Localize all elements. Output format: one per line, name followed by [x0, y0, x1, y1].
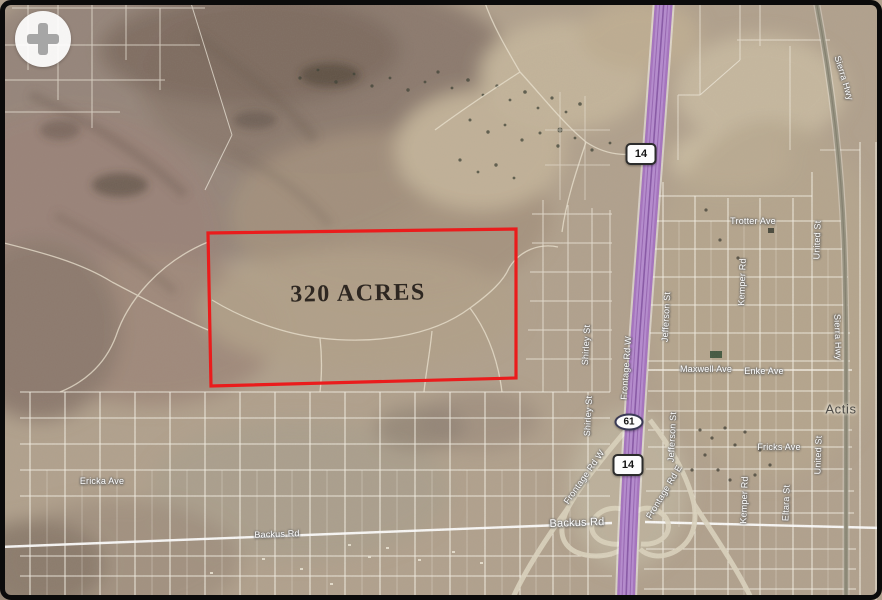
satellite-map-canvas[interactable]: 320 ACRES 14 14 61 Backus Rd Backus Rd S…: [0, 0, 882, 600]
ericka-ave-label: Ericka Ave: [80, 476, 124, 486]
kemper-rd-label-south: Kemper Rd: [738, 476, 750, 524]
sierra-hwy-label-mid: Sierra Hwy: [832, 314, 844, 360]
eltara-st-label: Eltara St: [780, 485, 791, 522]
image-grain: [0, 0, 882, 600]
backus-rd-label-center: Backus Rd: [549, 516, 604, 530]
maxwell-ave-label: Maxwell Ave: [680, 364, 732, 374]
trotter-ave-label: Trotter Ave: [730, 216, 776, 226]
shirley-st-label-north: Shirley St: [580, 325, 592, 366]
map-window: 320 ACRES 14 14 61 Backus Rd Backus Rd S…: [0, 0, 882, 600]
zoom-in-button[interactable]: [15, 11, 71, 67]
exit-61-badge: 61: [615, 414, 644, 431]
shirley-st-label-south: Shirley St: [582, 396, 594, 437]
route-14-shield-south: 14: [613, 454, 644, 476]
parcel-acreage-label: 320 ACRES: [290, 279, 426, 308]
enke-ave-label: Enke Ave: [744, 366, 783, 376]
actis-place-label: Actis: [825, 402, 856, 417]
satellite-imagery: [0, 0, 882, 600]
united-st-label-south: United St: [812, 435, 823, 474]
plus-icon: [15, 11, 71, 67]
fricks-ave-label: Fricks Ave: [757, 442, 800, 452]
route-14-shield-north: 14: [626, 143, 657, 165]
backus-rd-label-west: Backus Rd: [254, 528, 300, 540]
united-st-label-north: United St: [811, 220, 822, 259]
kemper-rd-label-north: Kemper Rd: [736, 258, 748, 306]
